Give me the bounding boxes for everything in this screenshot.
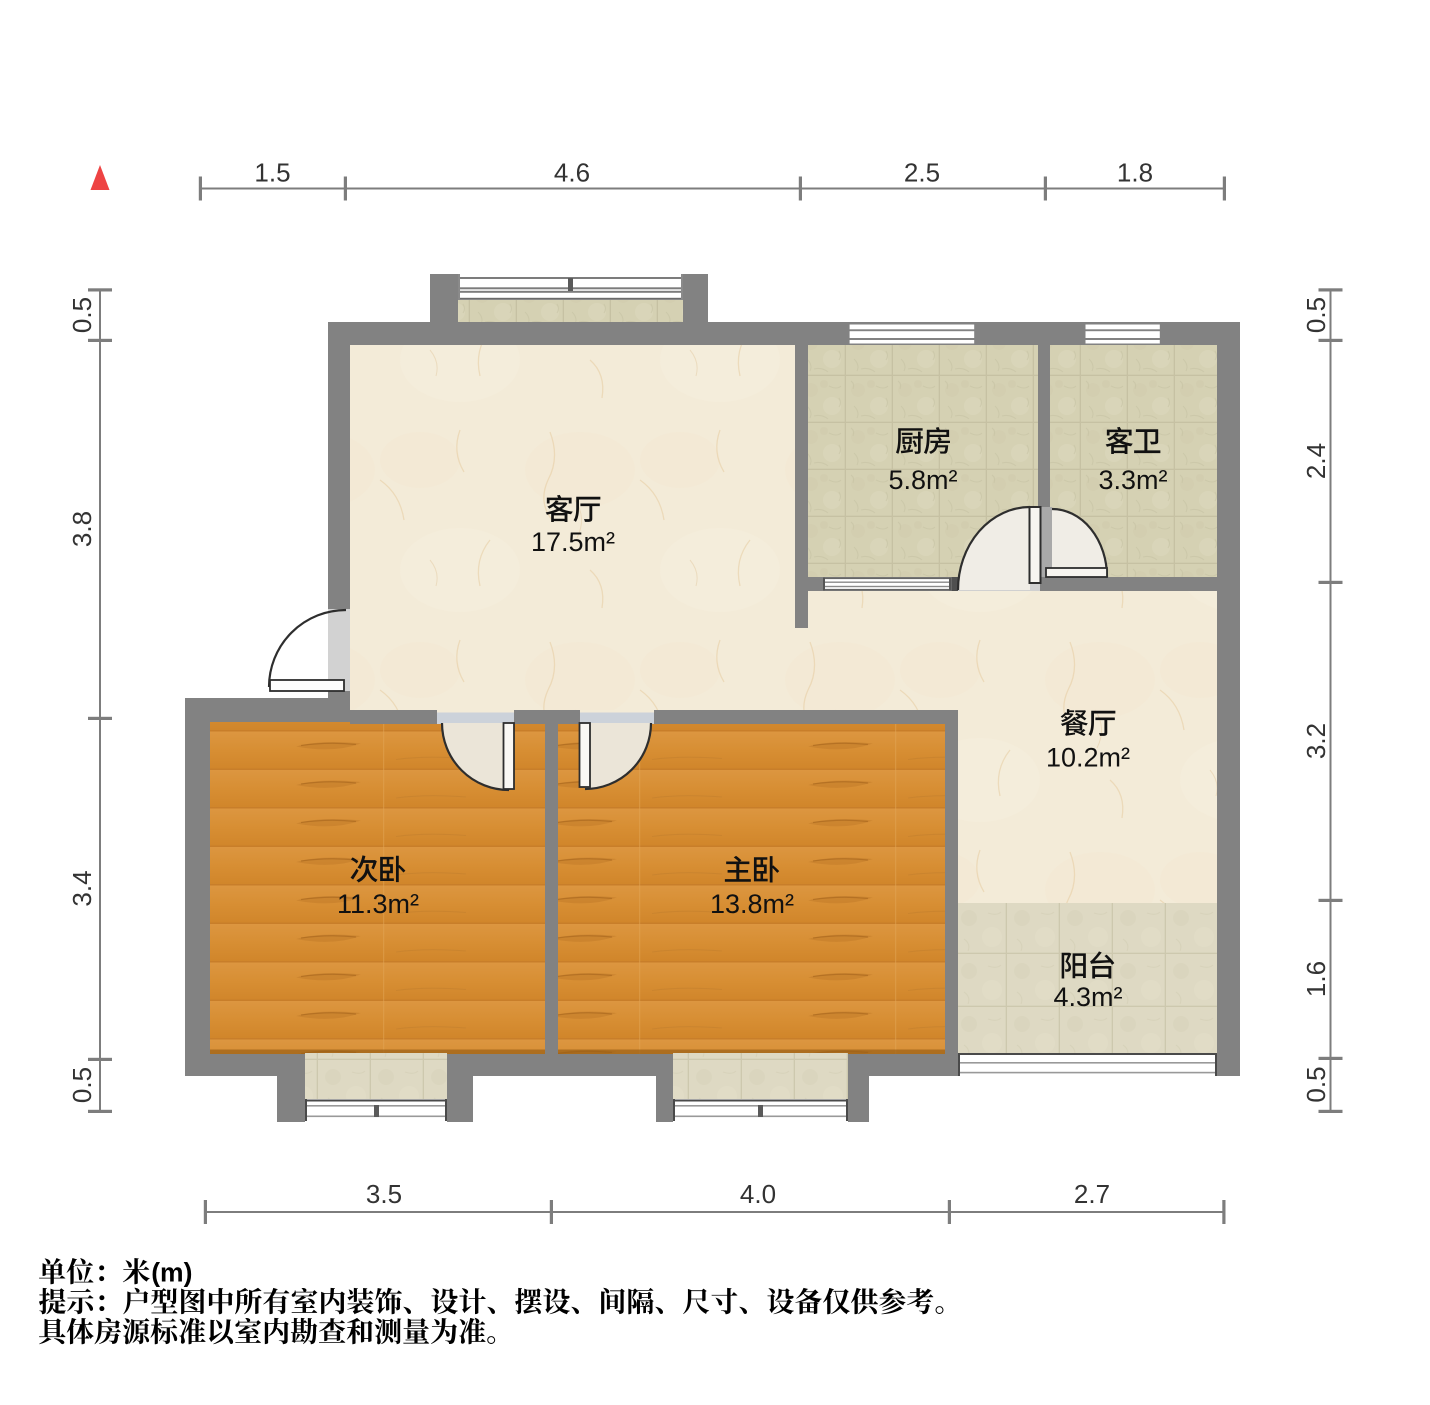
svg-text:17.5m²: 17.5m² (531, 527, 615, 557)
svg-text:2.5: 2.5 (904, 158, 940, 188)
svg-text:1.5: 1.5 (254, 158, 290, 188)
svg-text:3.3m²: 3.3m² (1098, 465, 1167, 495)
svg-text:3.8: 3.8 (67, 511, 97, 547)
svg-text:3.4: 3.4 (67, 870, 97, 906)
svg-text:5.8m²: 5.8m² (888, 465, 957, 495)
svg-text:(m): (m) (151, 1257, 192, 1287)
svg-text:11.3m²: 11.3m² (337, 889, 419, 919)
svg-text:3.5: 3.5 (366, 1179, 402, 1209)
svg-text:4.6: 4.6 (554, 158, 590, 188)
svg-text:4.0: 4.0 (740, 1179, 776, 1209)
svg-text:0.5: 0.5 (1301, 1066, 1331, 1102)
svg-text:3.2: 3.2 (1301, 723, 1331, 759)
svg-text:10.2m²: 10.2m² (1046, 743, 1130, 773)
svg-text:4.3m²: 4.3m² (1053, 982, 1122, 1012)
svg-text:2.7: 2.7 (1074, 1179, 1110, 1209)
svg-text:0.5: 0.5 (67, 1067, 97, 1103)
svg-text:2.4: 2.4 (1301, 443, 1331, 479)
svg-text:0.5: 0.5 (67, 297, 97, 333)
svg-text:13.8m²: 13.8m² (710, 889, 794, 919)
svg-text:1.8: 1.8 (1117, 158, 1153, 188)
svg-text:1.6: 1.6 (1301, 961, 1331, 997)
svg-text:0.5: 0.5 (1301, 297, 1331, 333)
